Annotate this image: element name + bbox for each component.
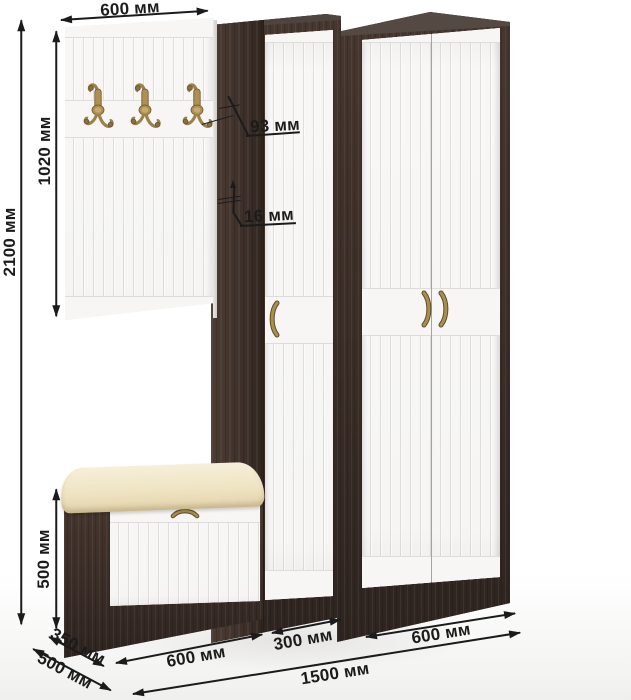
dim-total-height-label: 2100 мм (1, 196, 19, 288)
dim-thickness-label: 16 мм (244, 206, 295, 226)
furniture-dimension-diagram: 600 мм 2100 мм 1020 мм 500 мм 93 мм 16 м… (0, 0, 631, 700)
dim-panel-height-label: 1020 мм (36, 105, 54, 197)
panel-side-edge (213, 20, 217, 318)
wardrobe-handle-icon (438, 290, 449, 328)
dim-panel-width-label: 600 мм (95, 0, 166, 19)
dim-bench-height-label: 500 мм (35, 513, 53, 605)
wardrobe-handle-icon (421, 290, 432, 328)
dim-bench-height-arrow (55, 489, 57, 628)
door-handle-icon (269, 300, 280, 338)
dim-total-height-arrow (20, 20, 22, 624)
bench-cushion (60, 461, 264, 513)
dim-hook-offset-label: 93 мм (250, 116, 301, 136)
wardrobe-doors (362, 28, 500, 588)
dim-panel-height-arrow (55, 31, 57, 316)
coat-hook-icon (180, 80, 214, 136)
coat-panel (65, 18, 214, 320)
bench-flap (110, 501, 260, 606)
coat-hook-icon (81, 80, 115, 136)
wardrobe (337, 11, 510, 643)
coat-hook-icon (128, 80, 162, 136)
